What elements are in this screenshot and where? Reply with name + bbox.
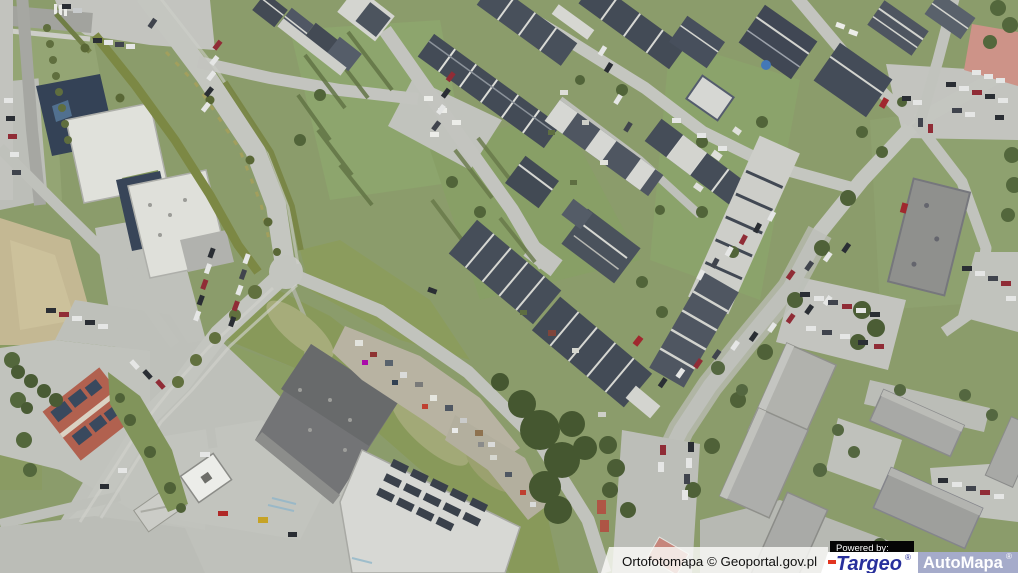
svg-text:®: ® xyxy=(905,553,911,562)
svg-text:Targeo: Targeo xyxy=(836,553,902,573)
svg-text:®: ® xyxy=(1006,552,1012,561)
svg-text:AutoMapa: AutoMapa xyxy=(923,554,1004,572)
svg-text:Ortofotomapa © Geoportal.gov.p: Ortofotomapa © Geoportal.gov.pl xyxy=(622,554,817,569)
